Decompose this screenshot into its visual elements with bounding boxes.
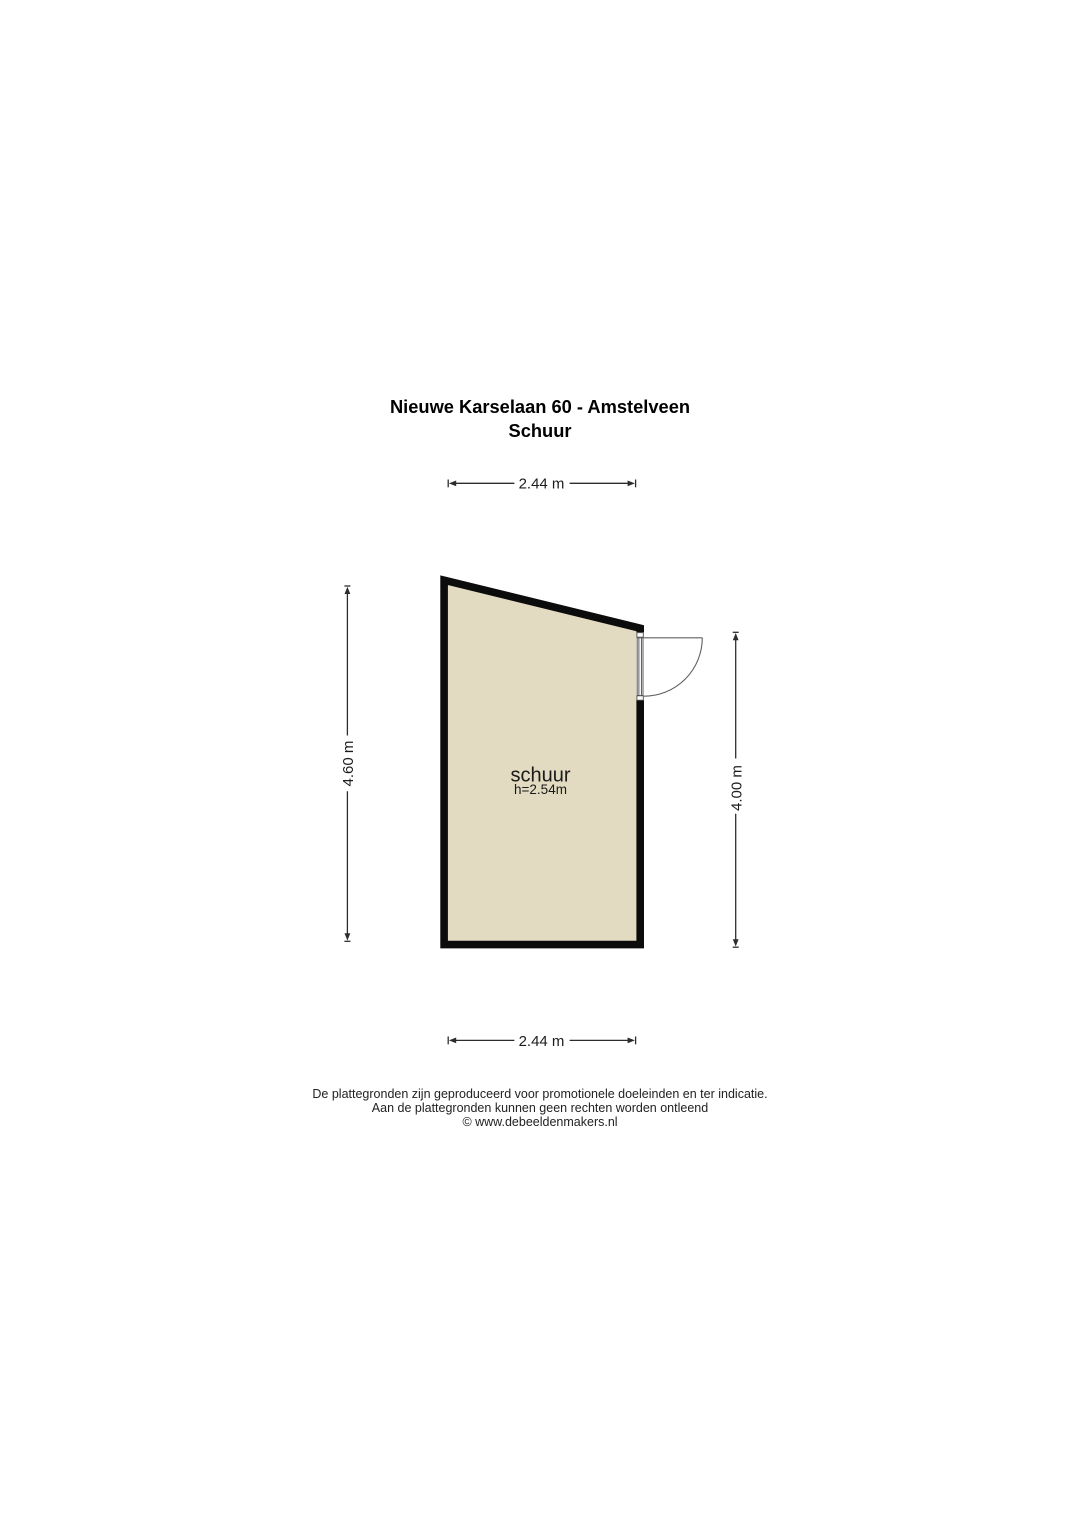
svg-text:2.44 m: 2.44 m — [519, 476, 565, 493]
svg-text:h=2.54m: h=2.54m — [514, 782, 567, 797]
svg-text:4.00 m: 4.00 m — [728, 765, 745, 811]
svg-text:2.44 m: 2.44 m — [519, 1033, 565, 1050]
svg-text:4.60 m: 4.60 m — [340, 741, 357, 787]
